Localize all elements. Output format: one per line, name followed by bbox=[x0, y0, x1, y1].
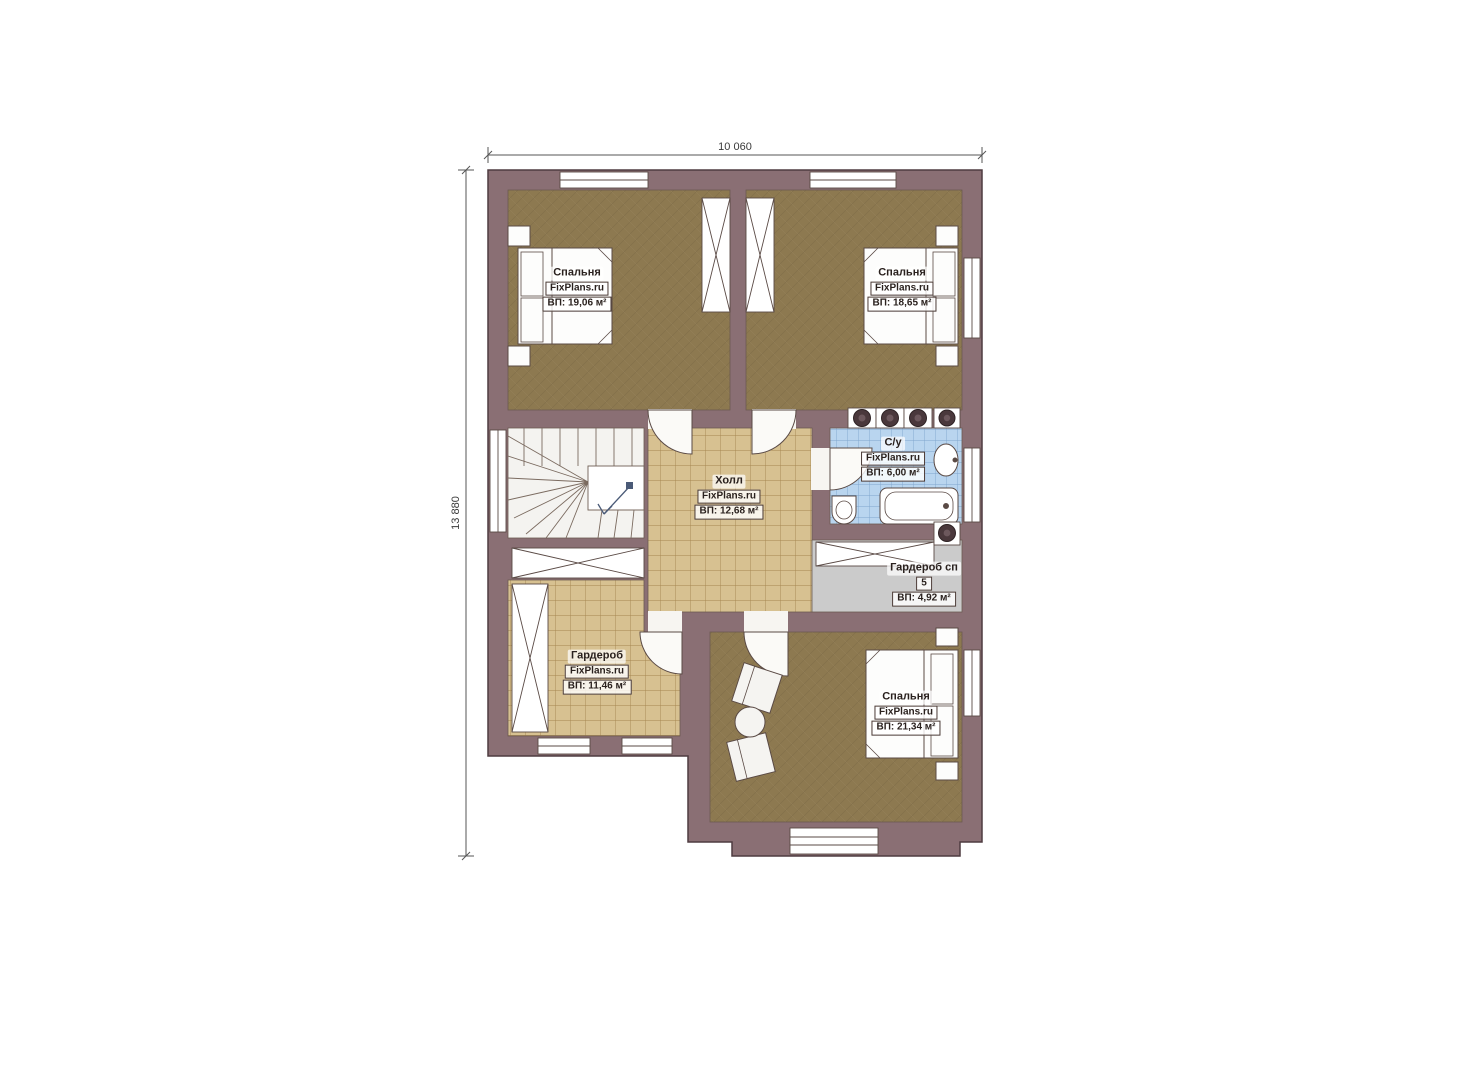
room-area: ВП: 11,46 м² bbox=[563, 680, 632, 695]
window-left-stairs bbox=[490, 430, 506, 532]
room-brand: FixPlans.ru bbox=[870, 281, 934, 296]
room-brand: FixPlans.ru bbox=[697, 489, 761, 504]
dimension-left-label: 13 880 bbox=[450, 496, 462, 530]
window-bottom-left-2 bbox=[622, 738, 672, 754]
closet-bedroom-2 bbox=[746, 198, 774, 312]
room-label-bedroom-1: Спальня FixPlans.ru ВП: 19,06 м² bbox=[542, 267, 611, 312]
room-name: С/у bbox=[881, 437, 904, 451]
closet-bedroom-1 bbox=[702, 198, 730, 312]
room-area: ВП: 4,92 м² bbox=[892, 592, 956, 607]
closet-stair-side bbox=[512, 548, 644, 578]
window-right-bathroom bbox=[964, 448, 980, 522]
room-brand: FixPlans.ru bbox=[861, 451, 925, 466]
dimension-top-label: 10 060 bbox=[718, 141, 752, 153]
toilet bbox=[832, 496, 856, 524]
window-bottom-left-1 bbox=[538, 738, 590, 754]
room-name: Спальня bbox=[550, 267, 604, 281]
room-name: Холл bbox=[712, 475, 746, 489]
hall-floor bbox=[648, 428, 812, 612]
room-name: Гардероб сп bbox=[887, 562, 961, 576]
room-label-wardrobe: Гардероб FixPlans.ru ВП: 11,46 м² bbox=[563, 650, 632, 695]
washing-machine bbox=[934, 522, 960, 545]
window-top-right bbox=[810, 172, 896, 188]
room-label-wardrobe-sp: Гардероб сп 5 ВП: 4,92 м² bbox=[887, 562, 961, 607]
room-label-bedroom-2: Спальня FixPlans.ru ВП: 18,65 м² bbox=[867, 267, 936, 312]
floor-plan-drawing: 10 060 13 880 bbox=[0, 0, 1474, 1080]
room-area: ВП: 6,00 м² bbox=[861, 467, 925, 482]
window-right-bedroom-3 bbox=[964, 650, 980, 716]
room-brand: 5 bbox=[916, 576, 932, 591]
room-area: ВП: 19,06 м² bbox=[542, 297, 611, 312]
room-label-bedroom-3: Спальня FixPlans.ru ВП: 21,34 м² bbox=[871, 691, 940, 736]
room-name: Гардероб bbox=[568, 650, 626, 664]
room-area: ВП: 18,65 м² bbox=[867, 297, 936, 312]
room-label-bathroom: С/у FixPlans.ru ВП: 6,00 м² bbox=[861, 437, 925, 482]
bathtub bbox=[880, 488, 958, 524]
closet-wardrobe-left bbox=[512, 584, 548, 732]
sink bbox=[934, 444, 958, 476]
room-brand: FixPlans.ru bbox=[545, 281, 609, 296]
room-area: ВП: 21,34 м² bbox=[871, 721, 940, 736]
window-bay-bottom bbox=[790, 828, 878, 854]
room-name: Спальня bbox=[875, 267, 929, 281]
room-name: Спальня bbox=[879, 691, 933, 705]
room-brand: FixPlans.ru bbox=[565, 664, 629, 679]
room-area: ВП: 12,68 м² bbox=[694, 505, 763, 520]
window-top-left bbox=[560, 172, 648, 188]
floor-plan-canvas: 10 060 13 880 bbox=[0, 0, 1474, 1080]
coffee-table bbox=[735, 707, 765, 737]
room-brand: FixPlans.ru bbox=[874, 705, 938, 720]
room-label-hall: Холл FixPlans.ru ВП: 12,68 м² bbox=[694, 475, 763, 520]
window-right-bedroom-2 bbox=[964, 258, 980, 338]
